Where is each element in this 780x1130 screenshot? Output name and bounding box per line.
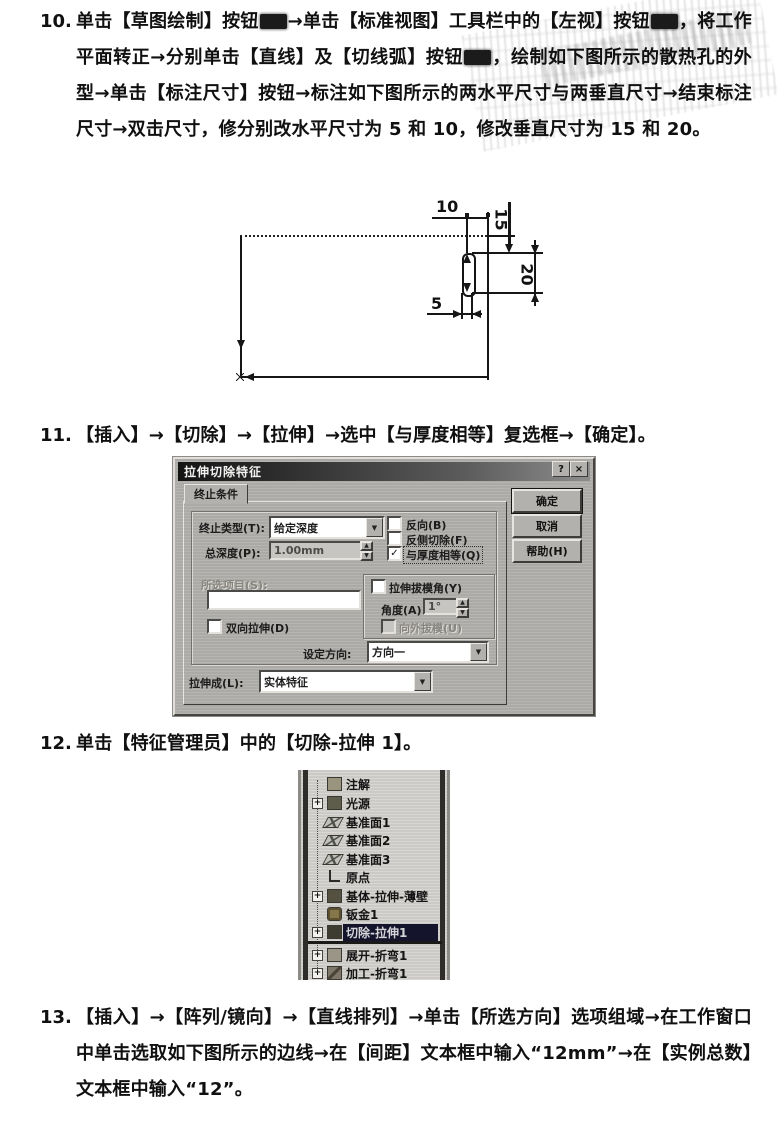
tab-end-condition[interactable]: 终止条件 [184,484,248,504]
expand-icon[interactable]: + [312,891,323,902]
help-icon[interactable]: ? [552,461,570,477]
dialog-title-bar[interactable]: 拉伸切除特征 [178,462,590,481]
selected-items-input[interactable] [207,590,361,610]
tree-item-plane2[interactable]: 基准面2 [310,831,438,848]
dropdown-arrow-icon[interactable]: ▼ [366,518,383,537]
dim-10-tick [486,213,490,217]
depth-input[interactable]: 1.00mm [269,541,367,560]
bottom-edge-endpoint-arrow [245,373,254,381]
dim-10-line [432,217,488,219]
ok-button[interactable]: 确定 [512,489,582,513]
step-13: 13. 【插入】→【阵列/镜向】→【直线排列】→单击【所选方向】选项组域→在工作… [40,1000,752,1108]
expand-icon[interactable]: + [312,968,323,979]
dim-5-label: 5 [431,294,442,313]
step-11-text: 【插入】→【切除】→【拉伸】→选中【与厚度相等】复选框→【确定】。 [76,418,752,454]
spinner-up-icon: ▲ [360,541,373,551]
tree-item-label: 注解 [346,776,370,793]
set-direction-label: 设定方向: [303,646,351,662]
tree-item-base-extrude-thin[interactable]: + 基体-拉伸-薄壁 [310,887,438,904]
draft-outward-checkbox-label: 向外拔模(U) [399,620,462,636]
left-edge-endpoint-arrow [237,340,245,349]
extrude-cut-dialog: 拉伸切除特征 ? × 终止条件 终止类型(T): 给定深度 ▼ 总深度(P): … [173,457,595,716]
spinner-up-icon: ▲ [456,598,469,608]
tree-item-label: 原点 [346,869,370,886]
tree-item-sheet-metal[interactable]: 钣金1 [310,905,438,922]
tree-right-border [447,770,450,980]
help-button[interactable]: 帮助(H) [512,539,582,563]
end-type-label: 终止类型(T): [199,520,265,536]
feature-manager-tree: 注解 + 光源 基准面1 基准面2 基准面3 原点 + 基体-拉伸-薄壁 [298,770,450,980]
step-13-number: 13. [40,1000,76,1108]
step-12-number: 12. [40,726,76,762]
direction-select[interactable]: 方向一 ▼ [367,641,489,663]
dim-10-label: 10 [436,197,458,216]
tree-right-border-dark [440,770,445,980]
lighting-icon [327,796,342,810]
tree-left-border [298,770,301,980]
dim-15-line [508,202,511,246]
close-icon[interactable]: × [570,461,588,477]
dim-20-bottom-arrow [531,293,539,302]
annotations-icon [327,777,342,791]
sketch-button-icon [260,14,287,29]
dropdown-arrow-icon[interactable]: ▼ [470,643,487,661]
depth-spinner[interactable]: ▲ ▼ [360,541,373,560]
angle-spinner[interactable]: ▲ ▼ [456,598,469,615]
tree-item-label: 光源 [346,795,370,812]
tree-item-label: 基准面2 [346,832,390,849]
draft-checkbox[interactable] [371,579,386,594]
tree-item-label-selected: 切除-拉伸1 [343,924,438,942]
end-type-select[interactable]: 给定深度 ▼ [269,516,385,539]
slot-top-arrow [463,254,471,263]
dialog-title: 拉伸切除特征 [184,463,262,480]
step-11: 11. 【插入】→【切除】→【拉伸】→选中【与厚度相等】复选框→【确定】。 [40,418,752,454]
tree-item-flatten-bends[interactable]: + 展开-折弯1 [310,946,438,963]
tree-item-label: 基准面3 [346,851,390,868]
draft-outward-checkbox[interactable] [381,619,396,634]
tree-item-label: 展开-折弯1 [346,947,407,964]
angle-label: 角度(A) [381,602,422,618]
sketch-top-edge [240,235,487,237]
tree-item-plane3[interactable]: 基准面3 [310,850,438,867]
corner-x-marker [236,373,244,381]
tangent-arc-button-icon [464,50,491,65]
sketch-bottom-edge [240,376,489,378]
step-12: 12. 单击【特征管理员】中的【切除-拉伸 1】。 [40,726,752,762]
flatten-bends-icon [327,948,342,962]
tree-item-label: 基准面1 [346,814,390,831]
slot-bottom-arrow [463,283,471,292]
step-13-text: 【插入】→【阵列/镜向】→【直线排列】→单击【所选方向】选项组域→在工作窗口中单… [76,1000,752,1108]
dropdown-arrow-icon[interactable]: ▼ [414,672,431,691]
origin-icon [329,870,340,882]
both-directions-checkbox-label: 双向拉伸(D) [226,620,289,636]
document-page: 10. 单击【草图绘制】按钮→单击【标准视图】工具栏中的【左视】按钮，将工作平面… [0,0,780,1130]
left-view-button-icon [651,14,678,29]
sheet-metal-icon [327,907,342,921]
flip-side-checkbox[interactable] [387,531,402,546]
flip-side-checkbox-label: 反侧切除(F) [406,532,468,548]
depth-label: 总深度(P): [205,545,261,561]
tree-left-border-dark [303,770,308,980]
step-10-text: 单击【草图绘制】按钮→单击【标准视图】工具栏中的【左视】按钮，将工作平面转正→分… [76,4,752,148]
tree-item-lighting[interactable]: + 光源 [310,794,438,811]
dim-20-top-arrow [531,245,539,254]
dim-5-left-arrow [453,310,462,318]
tree-item-origin[interactable]: 原点 [310,868,438,885]
tree-item-label: 加工-折弯1 [346,965,407,982]
tree-item-label: 基体-拉伸-薄壁 [346,888,428,905]
reverse-checkbox-label: 反向(B) [406,517,446,533]
tree-item-cut-extrude[interactable]: + 切除-拉伸1 [310,923,438,940]
tree-item-annotations[interactable]: 注解 [310,775,438,792]
plane-icon [322,817,344,828]
plane-icon [322,854,344,865]
expand-icon[interactable]: + [312,950,323,961]
expand-icon[interactable]: + [312,927,323,938]
step-10-number: 10. [40,4,76,148]
sketch-right-edge [487,212,489,380]
cut-extrude-icon [327,925,342,939]
dim-15-top-extension [489,235,515,237]
step-12-text: 单击【特征管理员】中的【切除-拉伸 1】。 [76,726,752,762]
sketch-drawing: 10 15 20 5 [205,188,560,406]
sketch-left-edge [240,236,242,377]
expand-icon[interactable]: + [312,798,323,809]
dim-10-extension [466,218,468,253]
link-to-thickness-checkbox[interactable]: ✓ [387,546,402,561]
tree-item-label: 钣金1 [346,906,378,923]
rollback-bar[interactable] [308,941,442,944]
extrude-as-label: 拉伸成(L): [189,675,243,691]
both-directions-checkbox[interactable] [207,619,222,634]
draft-checkbox-label: 拉伸拔模角(Y) [389,580,462,596]
tree-item-plane1[interactable]: 基准面1 [310,813,438,830]
base-extrude-thin-icon [327,889,342,903]
dim-10-tick [465,213,469,217]
tree-item-process-bends[interactable]: + 加工-折弯1 [310,964,438,981]
reverse-checkbox[interactable] [387,516,402,531]
process-bends-icon [327,966,342,980]
step-10: 10. 单击【草图绘制】按钮→单击【标准视图】工具栏中的【左视】按钮，将工作平面… [40,4,752,148]
cancel-button[interactable]: 取消 [512,514,582,538]
plane-icon [322,835,344,846]
spinner-down-icon: ▼ [456,608,469,618]
step-11-number: 11. [40,418,76,454]
dim-5-right-arrow [472,310,481,318]
extrude-as-select[interactable]: 实体特征 ▼ [259,670,433,693]
spinner-down-icon: ▼ [360,551,373,561]
link-to-thickness-checkbox-label: 与厚度相等(Q) [404,547,482,563]
